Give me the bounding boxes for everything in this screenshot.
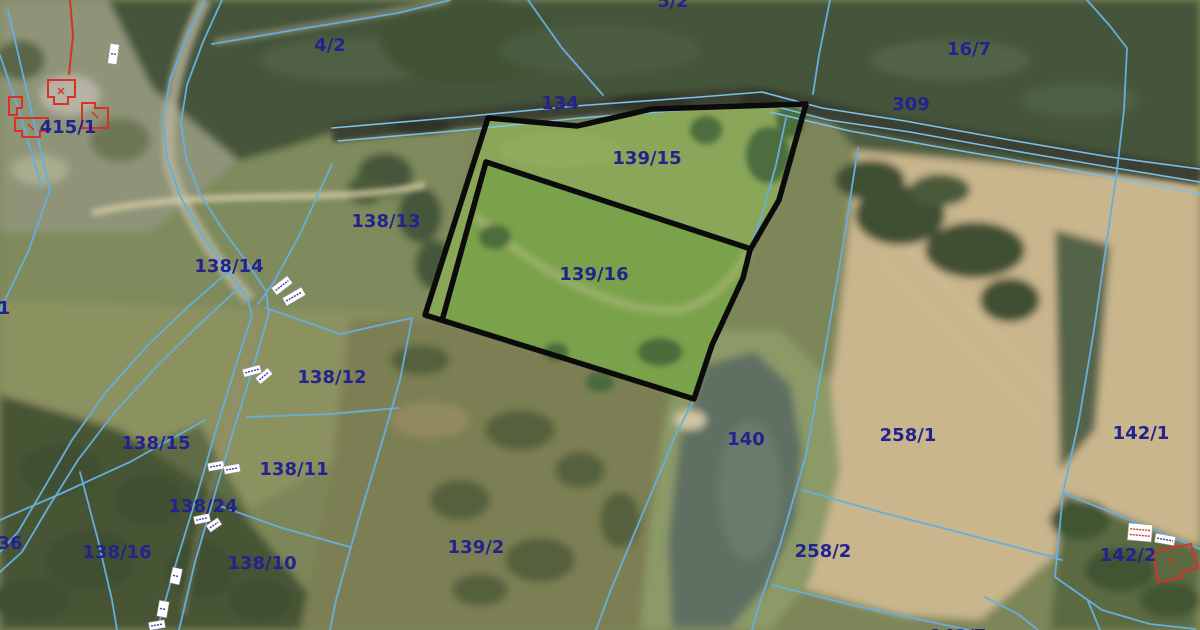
parcel-label: 415/1 <box>40 117 97 138</box>
measurement-chip <box>1127 523 1152 542</box>
parcel-label: 1 <box>0 298 10 319</box>
parcel-label: 309 <box>892 94 930 115</box>
parcel-label: 139/16 <box>559 264 628 285</box>
parcel-label: 138/16 <box>82 542 151 563</box>
parcel-label: 142/1 <box>1113 423 1170 444</box>
parcel-label: 4/2 <box>314 35 346 56</box>
parcel-label: 138/15 <box>121 433 190 454</box>
parcel-label: 138/14 <box>194 256 263 277</box>
parcel-label: 5/2 <box>657 0 689 12</box>
parcel-label: 36 <box>0 533 23 554</box>
parcel-label: 138/13 <box>351 211 420 232</box>
parcel-label: 142/2 <box>1100 545 1157 566</box>
parcel-label: 258/1 <box>880 425 937 446</box>
map-canvas: 415/14/25/213430916/7139/15138/13138/141… <box>0 0 1200 630</box>
parcel-label: 134 <box>541 93 579 114</box>
cadastral-map: 415/14/25/213430916/7139/15138/13138/141… <box>0 0 1200 630</box>
parcel-label: 142/7 <box>930 626 987 630</box>
parcel-label: 139/15 <box>612 148 681 169</box>
parcel-label: 138/12 <box>297 367 366 388</box>
parcel-label: 16/7 <box>947 39 991 60</box>
parcel-label: 140 <box>727 429 765 450</box>
parcel-label: 138/11 <box>259 459 328 480</box>
parcel-label: 258/2 <box>795 541 852 562</box>
parcel-label: 138/24 <box>168 496 237 517</box>
parcel-label: 138/10 <box>227 553 296 574</box>
parcel-label: 139/2 <box>448 537 505 558</box>
